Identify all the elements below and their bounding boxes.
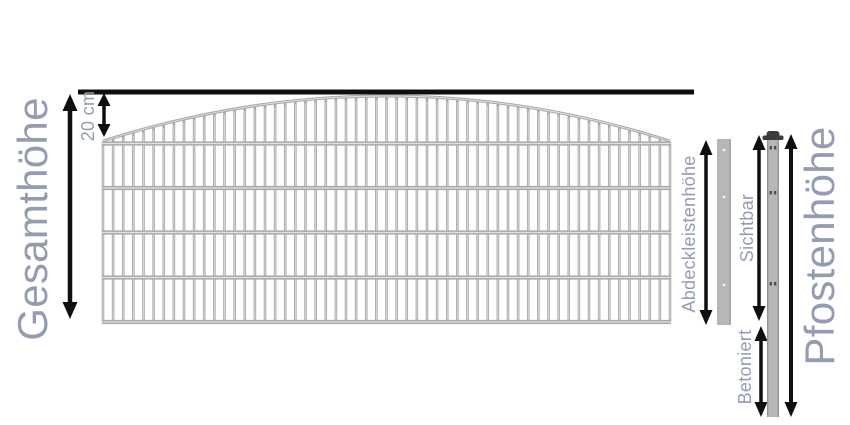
label-visible-height: Sichtbar bbox=[738, 194, 756, 262]
fence-dimension-diagram: Gesamthöhe 20 cm Abdeckleistenhöhe Sicht… bbox=[0, 0, 850, 425]
cover-strip-hole bbox=[723, 284, 726, 287]
fence-panel bbox=[102, 96, 671, 322]
label-cover-strip-height: Abdeckleistenhöhe bbox=[680, 155, 698, 312]
cover-strip-height-arrow bbox=[700, 140, 713, 325]
label-arch-rise: 20 cm bbox=[79, 91, 97, 142]
total-height-arrow bbox=[63, 94, 78, 319]
cover-strip-body bbox=[717, 139, 731, 325]
cover-strip bbox=[717, 139, 731, 325]
arch-rise-arrow bbox=[98, 93, 111, 137]
label-concreted-depth: Betoniert bbox=[736, 330, 754, 405]
fence-post bbox=[763, 131, 784, 417]
concreted-depth-arrow bbox=[755, 326, 768, 417]
label-post-height: Pfostenhöhe bbox=[799, 126, 841, 365]
label-total-height: Gesamthöhe bbox=[12, 97, 54, 340]
cover-strip-hole bbox=[723, 149, 726, 152]
cover-strip-hole bbox=[723, 196, 726, 199]
diagram-canvas bbox=[0, 0, 850, 425]
post-cap-brim bbox=[763, 136, 784, 141]
post-body bbox=[767, 139, 779, 417]
